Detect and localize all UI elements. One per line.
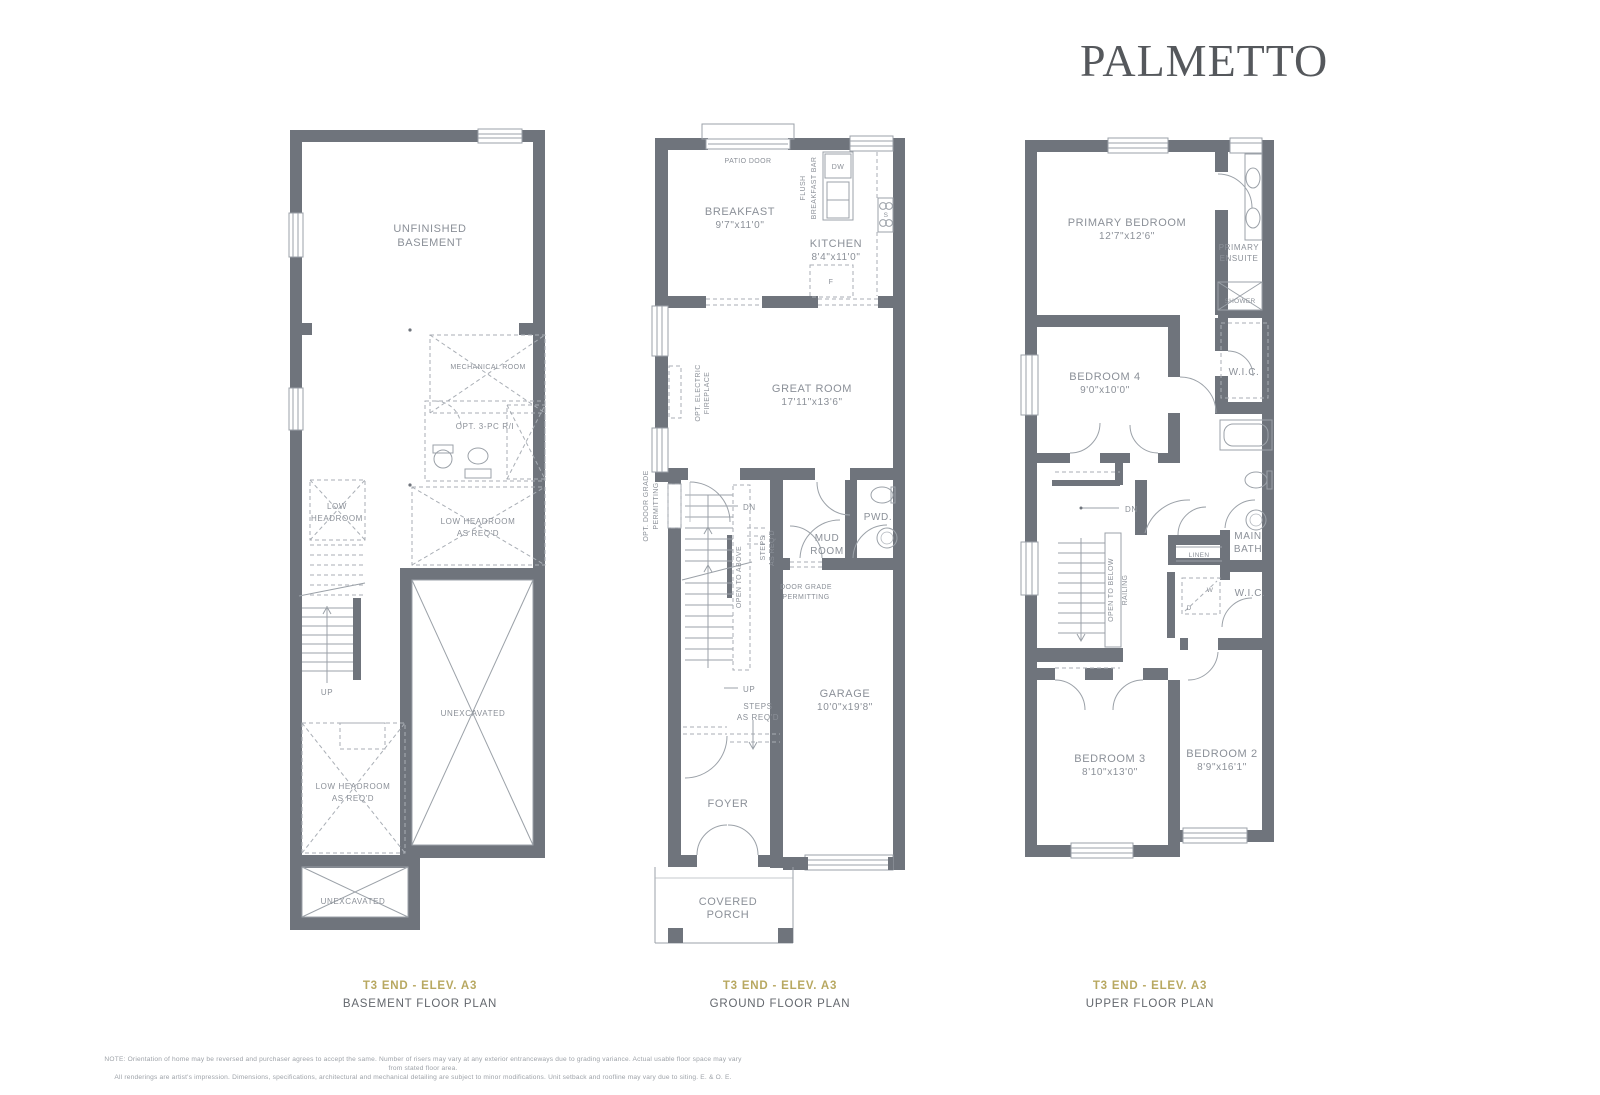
basement-model-label: T3 END - ELEV. A3: [285, 980, 555, 992]
open-to-below-label: OPEN TO BELOW: [1108, 558, 1115, 622]
bedroom4-label: BEDROOM 4: [1069, 371, 1140, 383]
primary-bedroom-dim: 12'7"x12'6": [1099, 231, 1155, 242]
upper-floor-plan: PRIMARY BEDROOM 12'7"x12'6" PRIMARY ENSU…: [1015, 130, 1285, 860]
dryer-label: D: [1187, 605, 1192, 612]
low-headroom-bottom-label1: LOW HEADROOM: [316, 782, 391, 791]
opt-fireplace-label2: FIREPLACE: [704, 372, 711, 415]
breakfast-bar-label: BREAKFAST BAR: [811, 157, 818, 220]
dn-label: DN: [743, 503, 756, 512]
steps-reqd-v1: STEPS: [760, 536, 767, 561]
low-headroom-req-label1: LOW HEADROOM: [441, 517, 516, 526]
mud-room-label1: MUD: [815, 533, 840, 544]
bedroom3-dim: 8'10"x13'0": [1082, 767, 1138, 778]
basement-floor-plan: UNFINISHED BASEMENT MECHANICAL ROOM OPT.…: [285, 125, 555, 940]
washer-label: W: [1207, 587, 1214, 594]
reference-dot: [408, 328, 411, 331]
opt-fireplace-label1: OPT. ELECTRIC: [695, 364, 702, 421]
up-label: UP: [321, 688, 333, 697]
main-bath-label1: MAIN: [1234, 531, 1261, 542]
opt-door-grade-label1: OPT. DOOR GRADE: [643, 470, 650, 541]
kitchen-dim: 8'4"x11'0": [812, 252, 861, 263]
basement-walls: [290, 130, 545, 930]
foyer-label: FOYER: [708, 798, 749, 810]
main-bath-label2: BATH: [1234, 544, 1262, 555]
ground-caption: T3 END - ELEV. A3 GROUND FLOOR PLAN: [640, 980, 920, 1010]
shower-label: SHOWER: [1224, 298, 1255, 305]
up-label: UP: [743, 685, 755, 694]
disclaimer-line1: NOTE: Orientation of home may be reverse…: [98, 1055, 748, 1073]
steps-reqd-h1: STEPS: [743, 702, 772, 711]
ground-floor-plan: PATIO DOOR BREAKFAST 9'7"x11'0" FLUSH BR…: [640, 110, 920, 945]
fridge-label: F: [829, 279, 834, 286]
stove-label: S: [884, 212, 889, 219]
breakfast-dim: 9'7"x11'0": [716, 220, 765, 231]
wic1-label: W.I.C.: [1229, 367, 1260, 378]
upper-model-label: T3 END - ELEV. A3: [1015, 980, 1285, 992]
unexcavated-label: UNEXCAVATED: [441, 709, 506, 718]
ground-plan-name: GROUND FLOOR PLAN: [640, 998, 920, 1010]
mud-room-label2: ROOM: [810, 546, 844, 557]
disclaimer-line2: All renderings are artist's impression. …: [98, 1073, 748, 1082]
garage-label: GARAGE: [820, 688, 871, 700]
wic2-label: W.I.C.: [1235, 588, 1266, 599]
basement-windows: [289, 129, 522, 430]
low-headroom-label1: LOW: [327, 502, 347, 511]
patio-door: [702, 124, 794, 149]
patio-door-label: PATIO DOOR: [725, 158, 772, 165]
powder-room-label: PWD.: [864, 512, 893, 523]
low-headroom-bottom-label2: AS REQ'D: [332, 794, 374, 803]
ground-walls: [655, 138, 905, 870]
steps-reqd-h2: AS REQ'D: [737, 713, 779, 722]
porch-label1: COVERED: [699, 896, 758, 908]
great-room-dim: 17'11"x13'6": [781, 397, 842, 408]
breakfast-label: BREAKFAST: [705, 206, 775, 218]
garage-dim: 10'0"x19'8": [817, 702, 873, 713]
low-headroom-left: [310, 480, 365, 595]
basement-plan-name: BASEMENT FLOOR PLAN: [285, 998, 555, 1010]
steps-reqd-v2: AS REQ'D: [769, 530, 776, 566]
foyer-area: [683, 720, 780, 855]
bedroom2-label: BEDROOM 2: [1186, 748, 1257, 760]
disclaimer-note: NOTE: Orientation of home may be reverse…: [98, 1055, 748, 1082]
opt-door-grade-label2: PERMITTING: [653, 482, 660, 529]
primary-ensuite-label1: PRIMARY: [1219, 243, 1260, 252]
ground-model-label: T3 END - ELEV. A3: [640, 980, 920, 992]
primary-ensuite-label2: ENSUITE: [1220, 254, 1259, 263]
bedroom2-dim: 8'9"x16'1": [1197, 762, 1247, 773]
unexcavated-bottom: [302, 867, 408, 917]
low-headroom-label2: HEADROOM: [311, 514, 363, 523]
opt-3pc-label: OPT. 3-PC R/I: [456, 422, 514, 431]
upper-plan-name: UPPER FLOOR PLAN: [1015, 998, 1285, 1010]
basement-caption: T3 END - ELEV. A3 BASEMENT FLOOR PLAN: [285, 980, 555, 1010]
opt-door-grade-opening: [668, 484, 681, 528]
low-headroom-req-label2: AS REQ'D: [457, 529, 499, 538]
floorplan-sheet: PALMETTO: [0, 0, 1600, 1095]
garage-door: [803, 855, 893, 870]
unfinished-basement-label: UNFINISHED: [393, 223, 466, 235]
unexcavated-bottom-label: UNEXCAVATED: [321, 897, 386, 906]
dn-label: DN: [1125, 505, 1138, 514]
ground-stairs: [682, 482, 767, 688]
mechanical-room-label: MECHANICAL ROOM: [450, 364, 525, 371]
fireplace-option: [669, 366, 681, 418]
unfinished-basement-label2: BASEMENT: [397, 237, 462, 249]
door-grade-label1: DOOR GRADE: [780, 584, 832, 591]
bedroom3-label: BEDROOM 3: [1074, 753, 1145, 765]
reference-dot: [408, 483, 411, 486]
door-grade-label2: PERMITTING: [782, 594, 829, 601]
kitchen-label: KITCHEN: [810, 238, 862, 250]
primary-bedroom-label: PRIMARY BEDROOM: [1068, 217, 1187, 229]
bedroom4-dim: 9'0"x10'0": [1080, 385, 1130, 396]
railing-label: RAILING: [1122, 575, 1129, 606]
kitchen-window: [850, 136, 893, 151]
linen-label: LINEN: [1189, 552, 1210, 559]
builder-logo: PALMETTO: [1080, 34, 1320, 87]
upper-caption: T3 END - ELEV. A3 UPPER FLOOR PLAN: [1015, 980, 1285, 1010]
open-to-above-label: OPEN TO ABOVE: [736, 546, 743, 608]
porch-label2: PORCH: [707, 909, 750, 921]
wic1-area: [1221, 323, 1268, 398]
low-headroom-center: [412, 487, 545, 565]
great-room-label: GREAT ROOM: [772, 383, 852, 395]
dishwasher-label: DW: [832, 164, 844, 171]
flush-label: FLUSH: [800, 176, 807, 201]
